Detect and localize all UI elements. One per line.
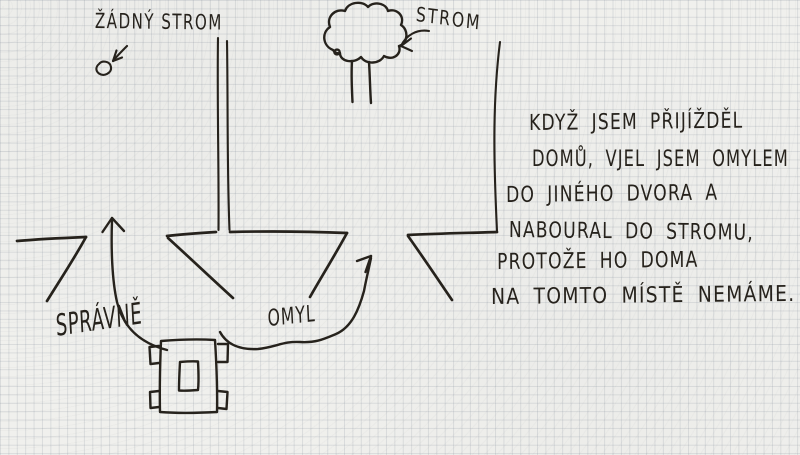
empty-spot-circle bbox=[96, 62, 111, 75]
yard-walls bbox=[17, 231, 497, 301]
label-mistake-way: OMYL bbox=[267, 301, 316, 332]
wheel-front-left bbox=[150, 346, 160, 364]
car-top-view bbox=[150, 339, 229, 412]
right-boundary-line bbox=[494, 42, 500, 231]
wheel-rear-right bbox=[218, 391, 228, 409]
wheel-front-right bbox=[218, 344, 228, 362]
fence-double-line bbox=[218, 38, 230, 230]
tree-drawing bbox=[324, 3, 406, 103]
note-line-6: NA TOMTO MÍSTĚ NEMÁME. bbox=[491, 282, 795, 310]
no-tree-pointer-arrow bbox=[113, 46, 127, 61]
note-line-1: KDYŽ JSEM PŘIJÍŽDĚL bbox=[529, 109, 743, 136]
note-line-2: DOMŮ, VJEL JSEM OMYLEM bbox=[532, 147, 789, 172]
note-line-5: PROTOŽE HO DOMA bbox=[497, 248, 699, 275]
note-line-4: NABOURAL DO STROMU, bbox=[509, 218, 754, 246]
label-no-tree: ŽÁDNÝ STROM bbox=[95, 9, 223, 35]
note-line-3: DO JINÉHO DVORA A bbox=[506, 181, 718, 208]
wheel-rear-left bbox=[150, 391, 159, 408]
graph-paper-sketch: ŽÁDNÝ STROM STROM SPRÁVNĚ OMYL KDYŽ JSEM… bbox=[0, 0, 800, 455]
